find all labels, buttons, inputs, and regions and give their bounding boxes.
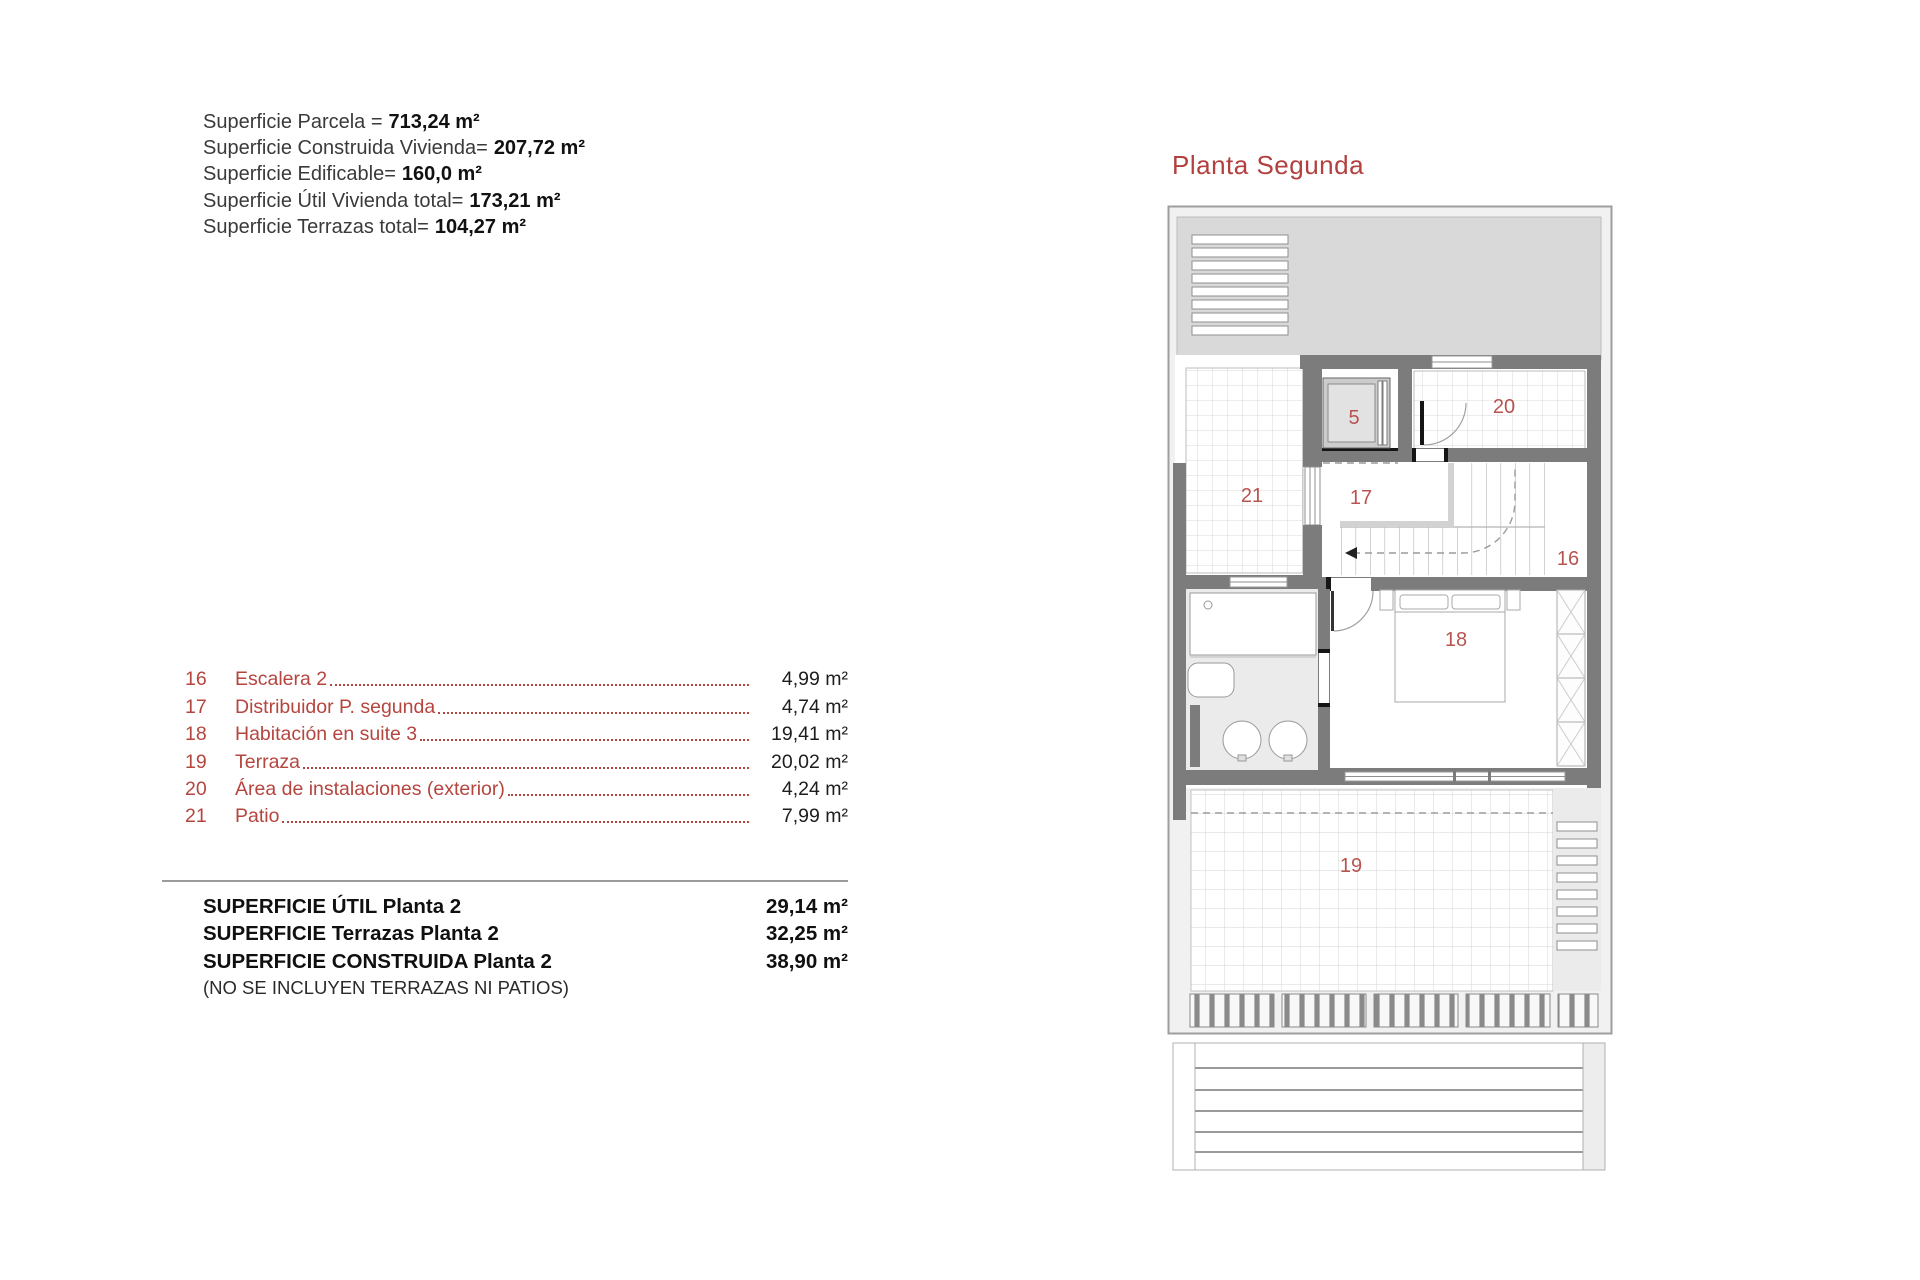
room-label-patio: 21 xyxy=(1241,485,1263,507)
room-area-list: 16Escalera 24,99 m² 17Distribuidor P. se… xyxy=(185,664,848,828)
sink xyxy=(1223,721,1261,759)
room-label-lift: 5 xyxy=(1348,407,1359,429)
room-label-distributor: 17 xyxy=(1350,487,1372,509)
dotted-leader xyxy=(438,712,749,714)
dotted-leader xyxy=(282,821,749,823)
summary-line: Superficie Útil Vivienda total=173,21 m² xyxy=(203,188,763,214)
total-row: SUPERFICIE ÚTIL Planta 229,14 m² xyxy=(203,891,848,919)
list-item: 18Habitación en suite 319,41 m² xyxy=(185,719,848,746)
room-label-terrace: 19 xyxy=(1340,855,1362,877)
dotted-leader xyxy=(508,794,749,796)
summary-line: Superficie Construida Vivienda=207,72 m² xyxy=(203,135,763,161)
list-item: 21Patio7,99 m² xyxy=(185,801,848,828)
room-label-stairs: 16 xyxy=(1557,548,1579,570)
lower-pergola xyxy=(1173,1043,1605,1170)
total-row: SUPERFICIE CONSTRUIDA Planta 238,90 m² xyxy=(203,946,848,974)
divider-line xyxy=(162,880,848,882)
terrace-19-tiles xyxy=(1191,790,1553,991)
totals-note: (NO SE INCLUYEN TERRAZAS NI PATIOS) xyxy=(203,977,848,999)
dotted-leader xyxy=(420,739,749,741)
dotted-leader xyxy=(303,767,749,769)
dotted-leader xyxy=(330,684,749,686)
floor-totals: SUPERFICIE ÚTIL Planta 229,14 m² SUPERFI… xyxy=(203,891,848,999)
list-item: 17Distribuidor P. segunda4,74 m² xyxy=(185,691,848,718)
patio-21-tiles xyxy=(1186,368,1303,573)
list-item: 20Área de instalaciones (exterior)4,24 m… xyxy=(185,774,848,801)
floor-plan-drawing: 5 20 21 17 16 18 19 xyxy=(1167,205,1617,1180)
plan-title: Planta Segunda xyxy=(1172,150,1364,181)
room-label-installations: 20 xyxy=(1493,396,1515,418)
surface-summary: Superficie Parcela =713,24 m² Superficie… xyxy=(203,109,763,240)
bathroom xyxy=(1186,589,1318,770)
shower xyxy=(1190,593,1316,655)
toilet xyxy=(1188,663,1234,697)
room-label-suite: 18 xyxy=(1445,629,1467,651)
summary-line: Superficie Parcela =713,24 m² xyxy=(203,109,763,135)
list-item: 19Terraza20,02 m² xyxy=(185,746,848,773)
list-item: 16Escalera 24,99 m² xyxy=(185,664,848,691)
railing-slats xyxy=(1190,994,1598,1027)
wardrobe xyxy=(1557,590,1585,766)
sink xyxy=(1269,721,1307,759)
summary-line: Superficie Edificable=160,0 m² xyxy=(203,161,763,187)
total-row: SUPERFICIE Terrazas Planta 232,25 m² xyxy=(203,919,848,947)
summary-line: Superficie Terrazas total=104,27 m² xyxy=(203,214,763,240)
